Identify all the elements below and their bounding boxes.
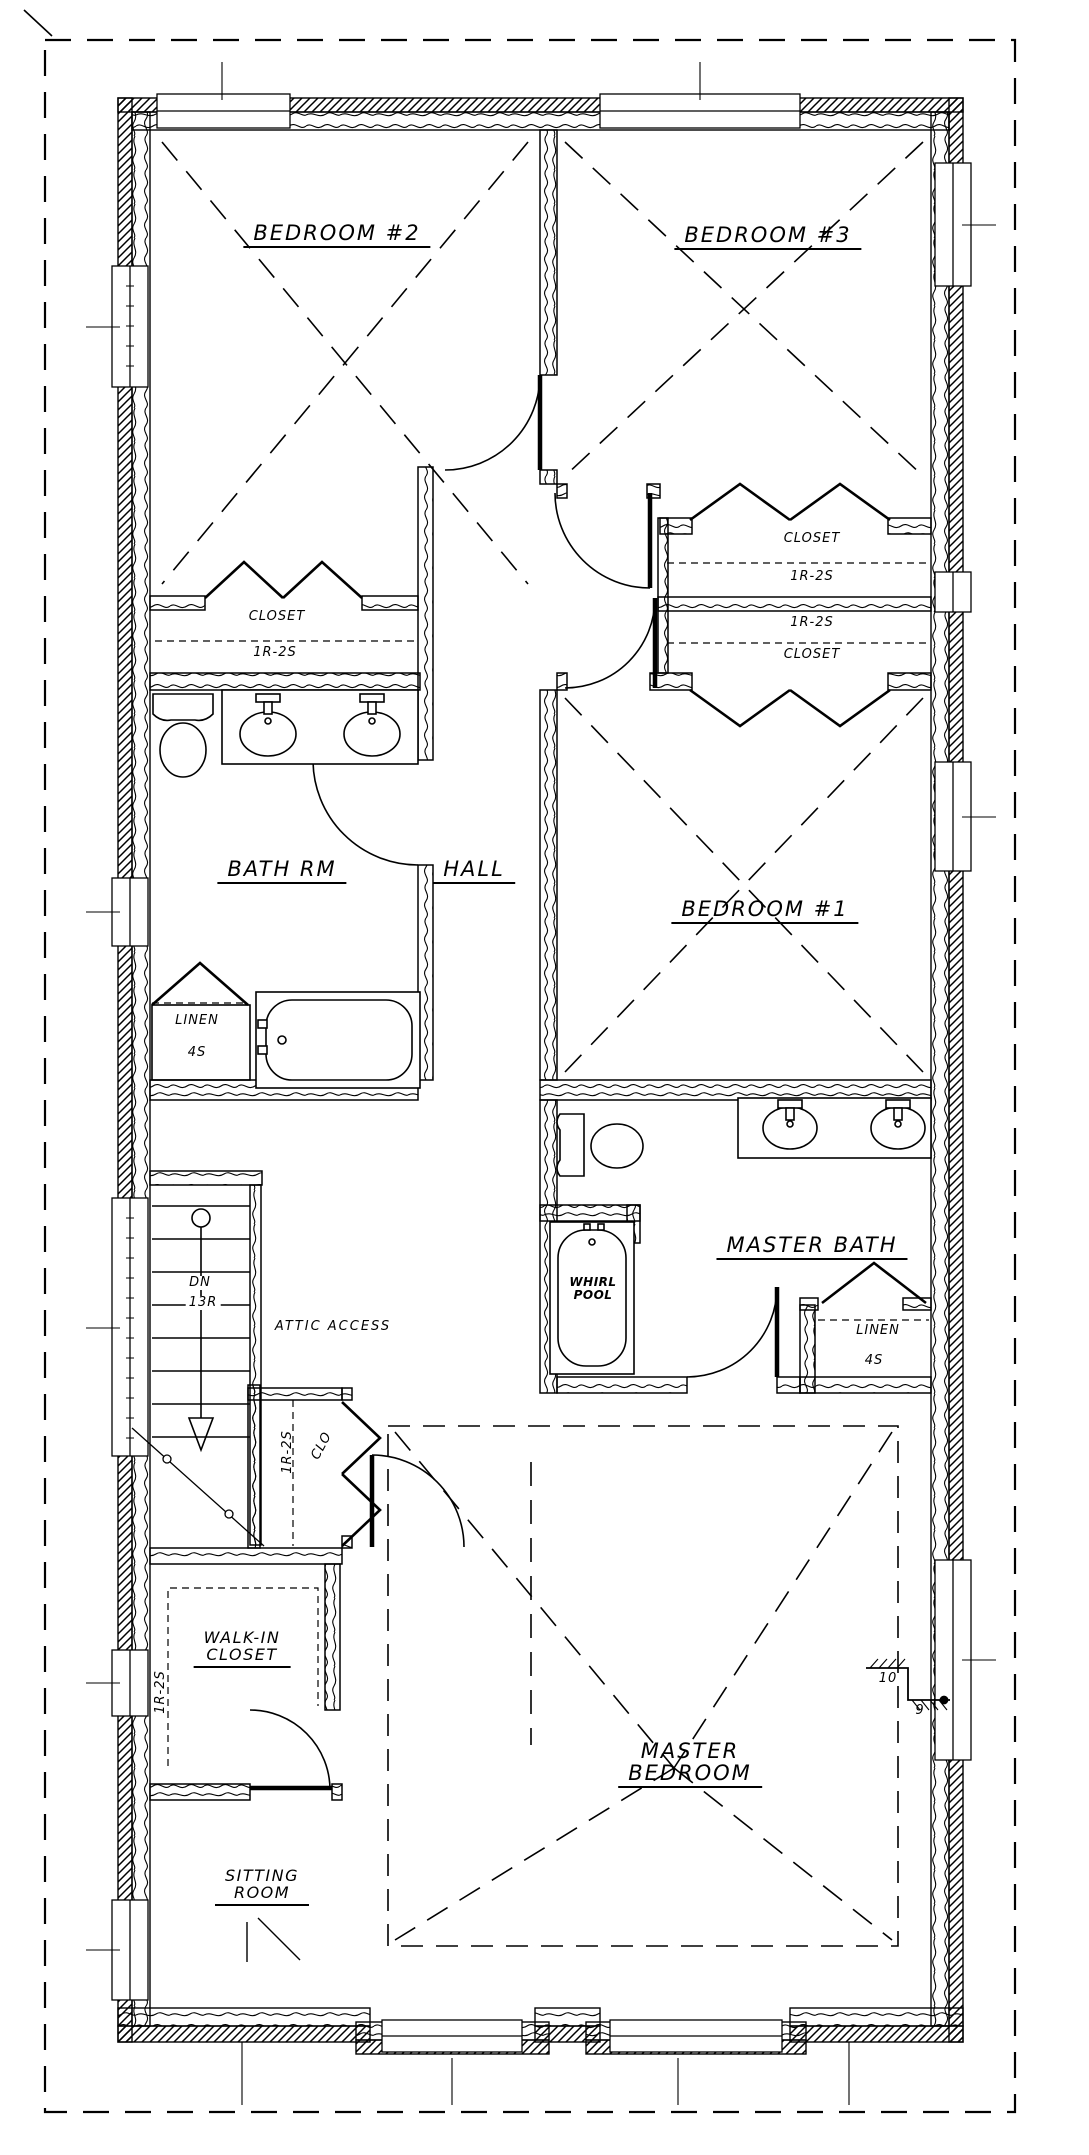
master-linen-config: 4S (865, 1354, 884, 1368)
bedroom2-closet-config: 1R-2S (253, 646, 297, 660)
bedroom2-label: BEDROOM #2 (243, 222, 430, 248)
whirlpool-line2: POOL (569, 1289, 616, 1302)
toilet-bowl (591, 1124, 643, 1168)
walk-in-closet-label: WALK-IN CLOSET (194, 1630, 291, 1668)
master-ceiling-break (388, 1426, 898, 1946)
bedroom1-label: BEDROOM #1 (671, 898, 858, 924)
toilet-tank (153, 694, 213, 720)
hall-bath-fixtures (152, 690, 420, 1088)
bedroom1-closet-name: CLOSET (781, 648, 844, 662)
toilet-tank (557, 1114, 584, 1176)
master-bedroom-line2: BEDROOM (628, 1762, 752, 1784)
bath-rm-label: BATH RM (217, 858, 346, 884)
bedroom2-closet-name: CLOSET (249, 610, 306, 624)
walk-in-line2: CLOSET (204, 1647, 281, 1664)
whirlpool-label: WHIRL POOL (566, 1276, 619, 1301)
hall-label: HALL (433, 858, 515, 884)
whirlpool-line1: WHIRL (569, 1276, 616, 1289)
bathtub (266, 1000, 412, 1080)
stairs-risers: 13R (186, 1296, 221, 1310)
floor-plan-drawing (0, 0, 1089, 2155)
master-bath-label: MASTER BATH (716, 1234, 907, 1260)
master-linen-name: LINEN (856, 1324, 900, 1338)
ceiling-height-low: 9 (915, 1704, 924, 1718)
ceiling-height-high: 10 (879, 1672, 898, 1686)
attic-access-label: ATTIC ACCESS (275, 1320, 391, 1334)
master-bedroom-label: MASTER BEDROOM (618, 1740, 762, 1788)
hall-linen-name: LINEN (175, 1014, 219, 1028)
master-bedroom-line1: MASTER (628, 1740, 752, 1762)
toilet-bowl (160, 723, 206, 777)
sitting-room-pointers (247, 1918, 300, 1962)
bedroom1-closet-config: 1R-2S (787, 616, 837, 630)
stairs (132, 1206, 264, 1546)
sitting-room-line2: ROOM (225, 1885, 299, 1902)
bedroom3-label: BEDROOM #3 (674, 224, 861, 250)
sitting-room-label: SITTING ROOM (215, 1868, 309, 1906)
bedroom3-closet-config: 1R-2S (787, 570, 837, 584)
hall-linen-config: 4S (188, 1046, 207, 1060)
stairs-direction: DN (186, 1276, 214, 1290)
bedroom3-closet-name: CLOSET (781, 532, 844, 546)
floor-plan: BEDROOM #2 BEDROOM #3 BEDROOM #1 BATH RM… (0, 0, 1089, 2155)
hall-closet-config: 1R-2S (281, 1430, 295, 1474)
walk-in-closet-config: 1R-2S (154, 1670, 168, 1714)
